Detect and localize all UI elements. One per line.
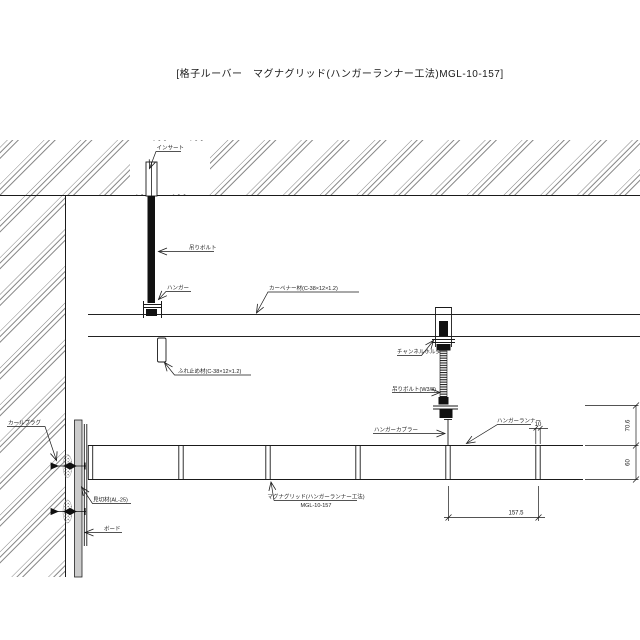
dimension-thickness <box>529 426 548 444</box>
label-hanger-runner: ハンガーランナー <box>497 417 541 425</box>
label-hanger: ハンガー <box>167 284 189 292</box>
drawing-title: [格子ルーバー マグナグリッド(ハンガーランナー工法)MGL-10-157] <box>176 67 503 80</box>
dim-upper-height: 70.6 <box>626 419 632 431</box>
louver-grid <box>88 445 583 480</box>
hanger-assembly-2 <box>432 308 458 446</box>
label-product-name: マグナグリッド(ハンガーランナー工法) <box>267 493 364 501</box>
structure-lines <box>0 196 640 578</box>
label-hanging-bolt: 吊りボルト <box>189 244 217 252</box>
wall-board <box>75 420 87 577</box>
dimension-right <box>585 403 639 483</box>
label-product-code: MGL-10-157 <box>301 503 332 509</box>
dimension-pitch <box>444 486 545 521</box>
label-brace-channel: ふれ止め材(C-38×12×1.2) <box>178 367 241 375</box>
carpenter-channel <box>88 315 640 337</box>
slab-hatch <box>0 140 640 577</box>
label-hanger-coupler: ハンガーカプラー <box>374 426 418 434</box>
label-edge-trim: 見切材(AL-25) <box>93 496 128 504</box>
dim-blade-pitch: 157.5 <box>508 511 524 517</box>
label-carpenter-channel: カーペナー材(C-38×12×1.2) <box>269 284 338 292</box>
technical-drawing: [格子ルーバー マグナグリッド(ハンガーランナー工法)MGL-10-157] <box>0 0 640 640</box>
label-insert: インサート <box>157 145 185 152</box>
label-curl-plug: カールプラグ <box>8 419 42 427</box>
label-board: ボード <box>104 525 121 533</box>
label-hanging-bolt-w38: 吊りボルト(W3/8) <box>392 385 436 393</box>
drawing-page: [格子ルーバー マグナグリッド(ハンガーランナー工法)MGL-10-157] <box>0 0 640 640</box>
label-channel-holder: チャンネルホルダー <box>397 348 446 356</box>
dim-louver-height: 60 <box>626 459 632 466</box>
